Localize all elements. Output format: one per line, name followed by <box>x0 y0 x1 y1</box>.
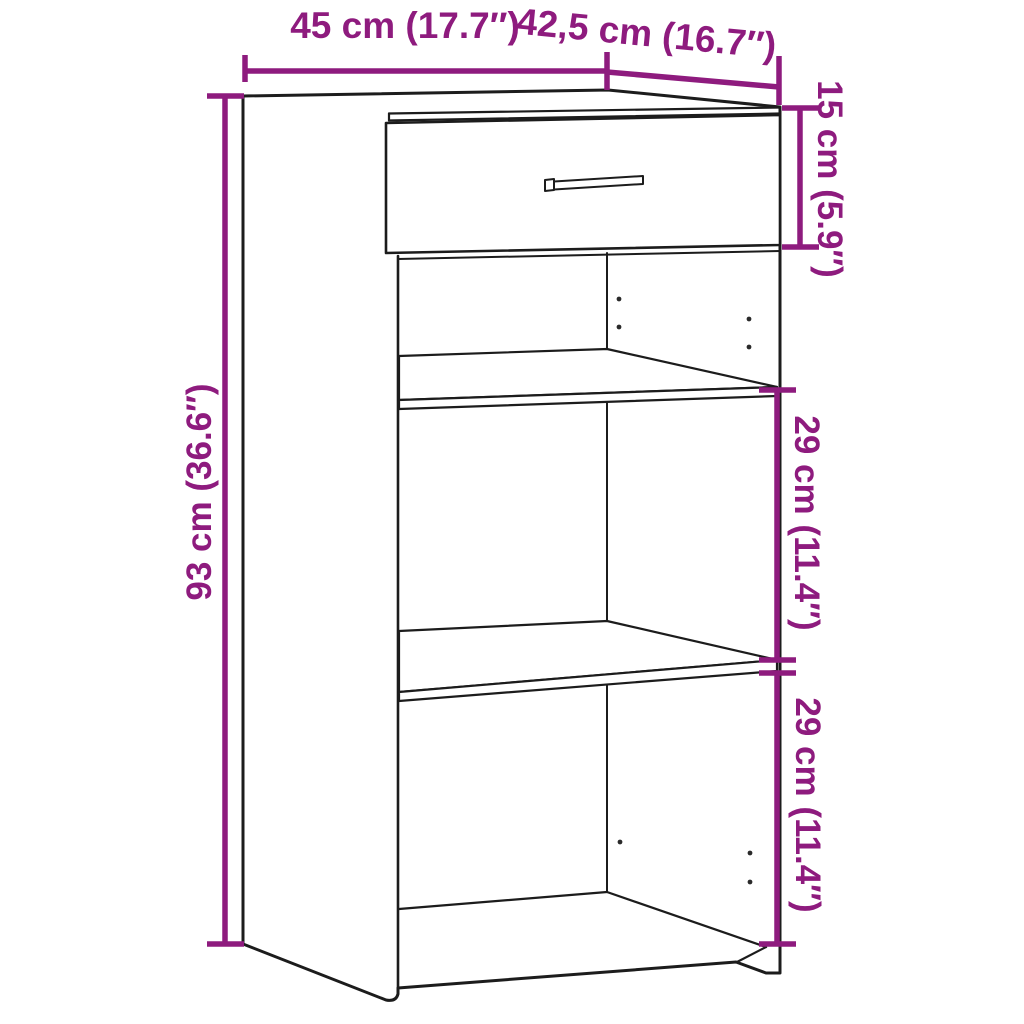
dimension-line-width <box>245 52 607 90</box>
pin-hole-dot <box>747 345 752 350</box>
dimension-label-drawer-height: 15 cm (5.9″) <box>810 80 849 278</box>
pin-hole-dot <box>618 840 623 845</box>
dimension-label-total-height: 93 cm (36.6″) <box>180 383 219 600</box>
pin-hole-dot <box>748 880 753 885</box>
diagram-canvas: 45 cm (17.7″) 42,5 cm (16.7″) 15 cm (5.9… <box>0 0 1024 1024</box>
drawer-handle-end-cap <box>545 179 554 191</box>
pin-hole-dot <box>617 297 622 302</box>
dimension-label-width: 45 cm (17.7″) <box>290 5 520 46</box>
pin-hole-dot <box>748 851 753 856</box>
dimension-label-lower-compartment: 29 cm (11.4″) <box>788 697 827 912</box>
pin-hole-dot <box>747 317 752 322</box>
dimension-label-upper-compartment: 29 cm (11.4″) <box>787 415 826 630</box>
product-dimension-diagram: 45 cm (17.7″) 42,5 cm (16.7″) 15 cm (5.9… <box>0 0 1024 1024</box>
pin-hole-dot <box>617 325 622 330</box>
dimension-label-depth: 42,5 cm (16.7″) <box>515 1 778 67</box>
cabinet-drawing <box>243 90 780 1000</box>
